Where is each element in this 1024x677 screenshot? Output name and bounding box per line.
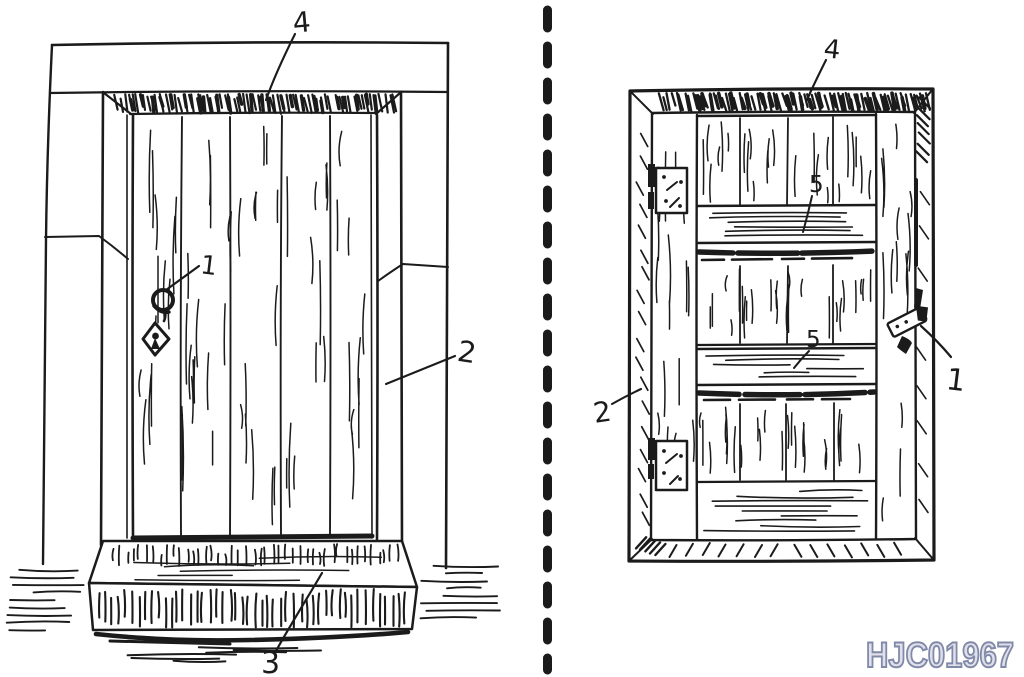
ground-under-step	[128, 647, 321, 662]
hinge-screw	[678, 477, 682, 481]
frame-right-hatching	[917, 192, 930, 513]
ring-handle-tail	[164, 311, 165, 321]
door-frame-left-reveal	[133, 115, 134, 537]
plank-divider	[330, 116, 331, 535]
lower-ledge-shadow-2	[704, 399, 850, 400]
mid-section-bottom	[697, 344, 876, 345]
left-stile-edge	[697, 115, 698, 539]
upper-ledge-shadow-2	[702, 258, 860, 260]
label-lower-ledge: 5	[806, 327, 821, 353]
hinge-screw	[662, 449, 666, 453]
bottom-section-grain-strokes	[700, 407, 861, 473]
hinge-knuckle	[648, 438, 655, 460]
hinge-screw	[662, 175, 666, 179]
hinge-knuckle	[648, 464, 654, 479]
label-jamb: 2	[455, 334, 479, 370]
leader-line-latch	[921, 326, 951, 357]
watermark: HJC01967	[866, 636, 1014, 675]
leader-line-handle	[166, 266, 199, 290]
frame-left-hatching-strokes	[636, 134, 650, 526]
wall-joint-left	[45, 236, 128, 259]
label-step: 3	[261, 646, 280, 677]
ground-left	[7, 570, 84, 631]
step-front-face	[89, 583, 417, 630]
mid-section-grain-strokes	[710, 269, 870, 338]
hinge-screw	[662, 471, 666, 475]
frame-bottom-hatching-left-strokes	[670, 543, 778, 557]
label-handle: 1	[199, 250, 219, 282]
bottom-section-grain	[700, 407, 861, 473]
frame-bottom-hatching-right	[794, 543, 901, 558]
plank-divider	[787, 118, 788, 205]
label-lintel: 4	[291, 5, 312, 39]
frame-right-hatching-strokes	[917, 192, 930, 513]
lower-ledge-bottom-edge	[697, 384, 876, 385]
latch-tail	[897, 336, 912, 354]
door-top-edge	[697, 115, 876, 116]
lintel-hatching-strokes	[114, 94, 396, 114]
label-latch: 1	[944, 362, 967, 399]
leader-line-jamb	[386, 356, 455, 384]
mid-section-grain	[710, 269, 870, 338]
plank-divider	[281, 116, 282, 535]
latch-handle	[886, 301, 934, 338]
wall-outline-left	[43, 45, 52, 564]
lower-ledge-shadow	[699, 392, 874, 395]
lintel-underside-edge	[130, 113, 377, 114]
bottom-rail-grain	[704, 490, 868, 531]
lintel-hatching	[114, 94, 396, 114]
figure-left-door-outside: 4 1 2 3	[7, 5, 500, 677]
label-upper-ledge: 5	[809, 172, 824, 198]
figure-right-door-inside: 4 5 5 2 1	[591, 34, 967, 561]
upper-ledge-grain	[710, 213, 863, 236]
frame-left-hatching	[636, 134, 650, 526]
label-frame-r: 2	[591, 395, 613, 430]
hinge-screw	[678, 204, 682, 208]
wall-joint-right	[378, 264, 448, 281]
hinge-screw	[679, 180, 683, 184]
upper-ledge-grain-strokes	[710, 213, 863, 236]
right-stile-edge	[876, 114, 877, 539]
door-frame-right-inner	[371, 115, 372, 538]
frame-bottom-hatching-right-strokes	[794, 543, 901, 558]
upper-ledge-top-edge	[697, 205, 876, 206]
ground-left-strokes	[7, 570, 84, 631]
door-sketches-svg: 4 1 2 3	[0, 0, 1024, 677]
upper-ledge-bottom-edge	[697, 242, 876, 243]
label-lintel-r: 4	[822, 34, 842, 66]
door-bottom-edge	[133, 536, 372, 538]
leader-line-lintel	[266, 34, 295, 100]
door-frame-right-outer	[401, 92, 402, 549]
frame-corner-br	[915, 538, 933, 559]
hinge-screw	[679, 454, 683, 458]
keyhole-hole	[152, 333, 159, 340]
bottom-section-bottom	[697, 481, 876, 482]
lower-ledge-top-edge	[697, 348, 876, 349]
bottom-rail-grain-strokes	[704, 490, 868, 531]
step-ground-shadow	[96, 632, 408, 640]
hinge-knuckle	[648, 164, 655, 187]
ground-right-strokes	[421, 566, 500, 619]
lower-ledge-grain	[706, 355, 863, 377]
wall-outline-right	[446, 43, 448, 568]
frame-bottom-hatching-left	[670, 543, 778, 557]
wall-lintel-band-line	[50, 91, 448, 93]
upper-ledge-shadow	[699, 251, 874, 253]
door-frame-left-outer	[101, 92, 103, 545]
frame-corner-tl	[631, 92, 653, 114]
wall-outline-top	[52, 42, 448, 45]
sketch-page: 4 1 2 3	[0, 0, 1024, 677]
hinge-screw	[664, 199, 668, 203]
lower-ledge-grain-strokes	[706, 355, 863, 377]
hinge-knuckle	[648, 192, 654, 209]
ground-under-step-strokes	[128, 647, 321, 662]
ground-right	[421, 566, 500, 619]
door-frame-right-reveal	[377, 115, 378, 539]
plank-divider	[230, 117, 231, 535]
leader-line-frame-r	[612, 389, 641, 404]
